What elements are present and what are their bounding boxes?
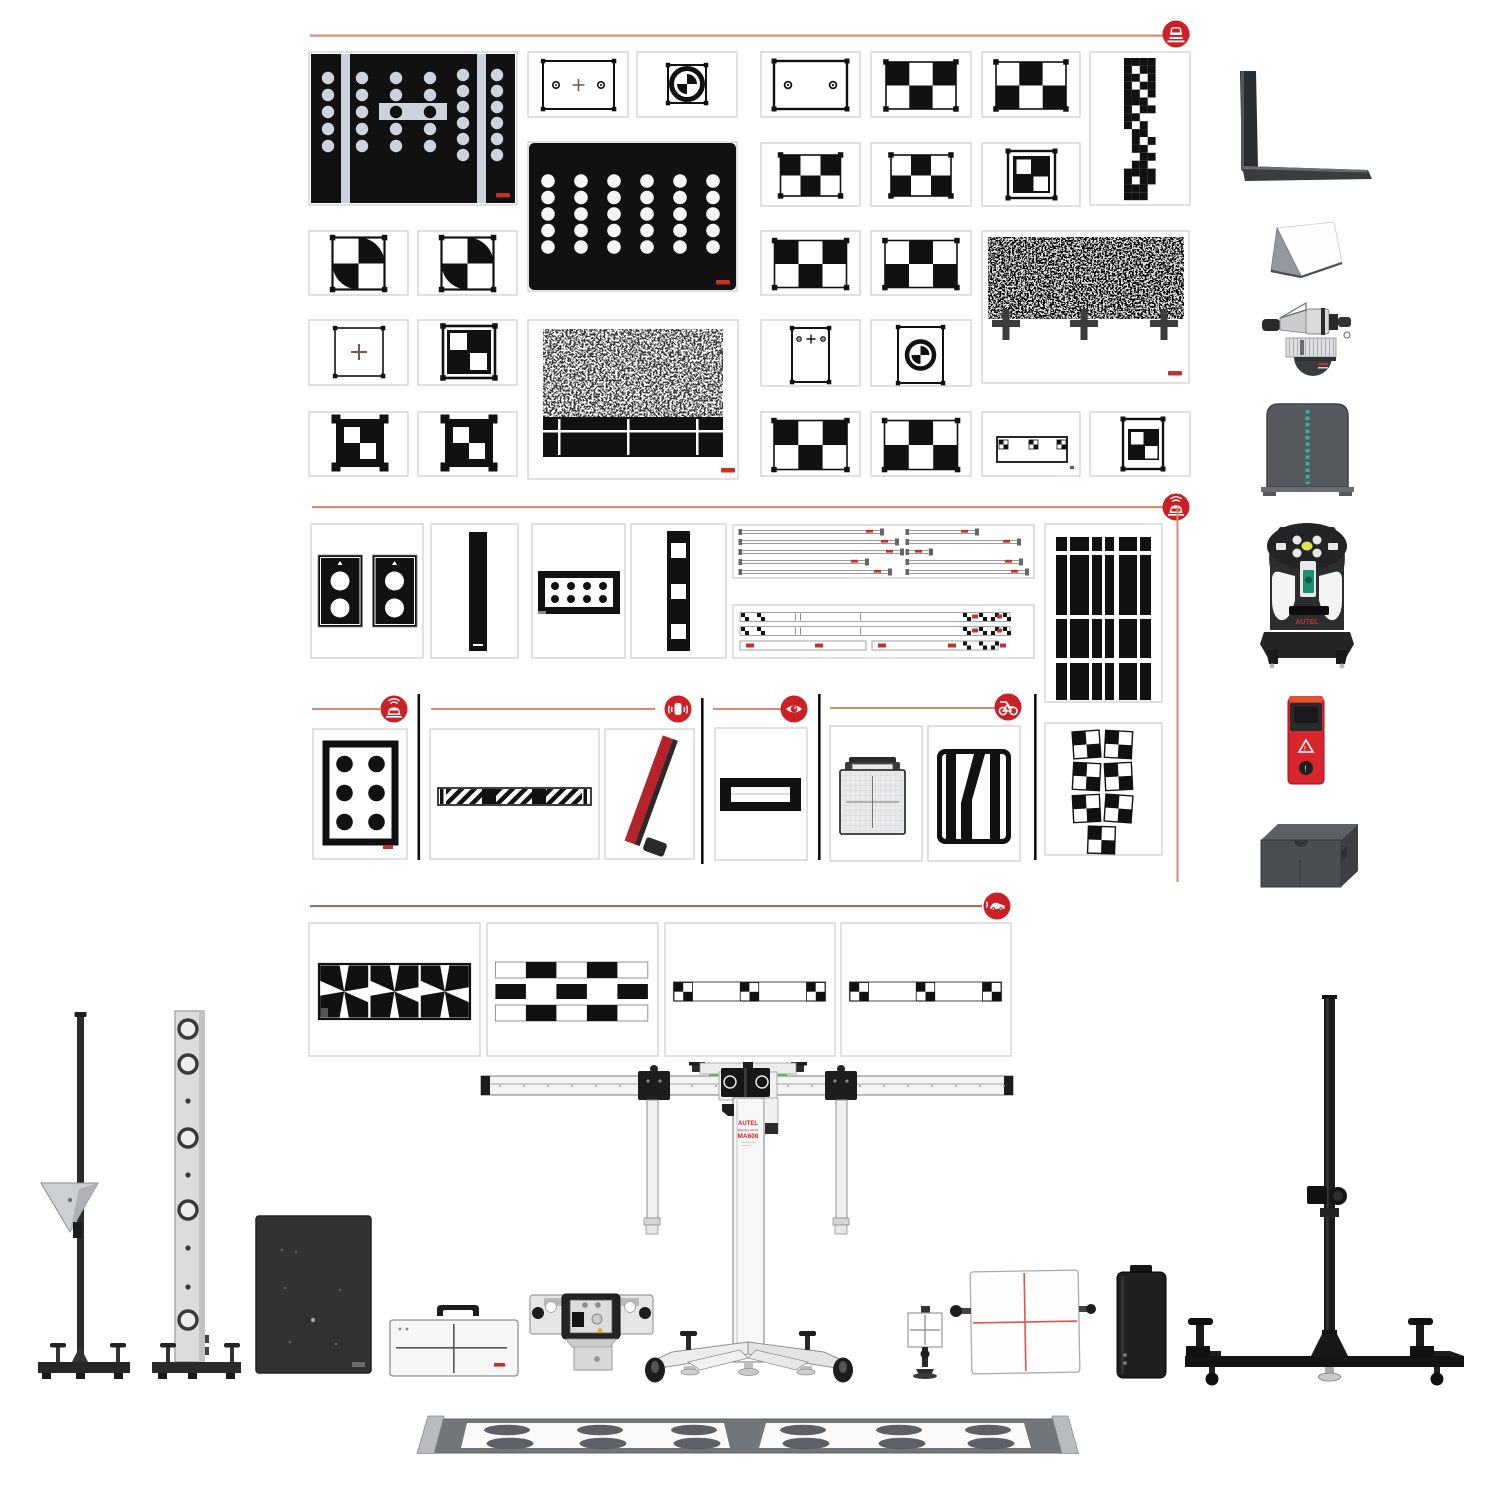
svg-text:!: ! <box>1305 765 1307 774</box>
svg-text:MaxiSys ADAS: MaxiSys ADAS <box>738 1128 758 1132</box>
svg-text:AUTEL: AUTEL <box>1295 619 1319 626</box>
svg-text:AUTEL: AUTEL <box>738 1121 758 1127</box>
svg-text:MA600: MA600 <box>738 1133 759 1140</box>
svg-text:!: ! <box>1304 746 1306 753</box>
